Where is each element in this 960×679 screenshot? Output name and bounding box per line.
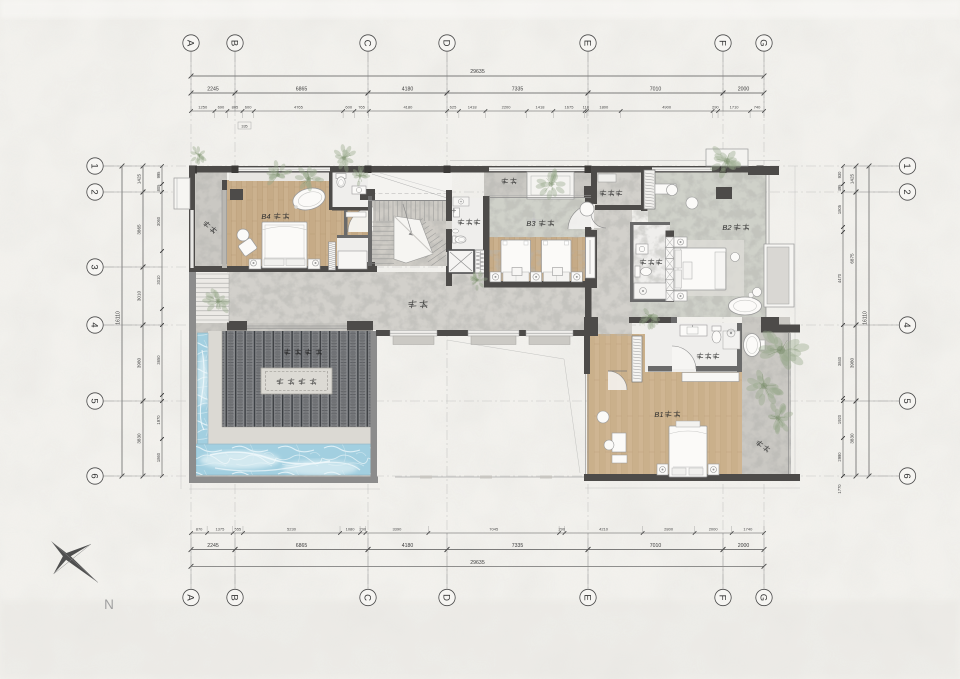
svg-text:7335: 7335 [512, 543, 524, 549]
svg-text:3390: 3390 [392, 527, 402, 532]
svg-text:2: 2 [901, 189, 912, 194]
svg-text:1805: 1805 [837, 204, 842, 214]
svg-text:1710: 1710 [730, 105, 740, 110]
svg-text:805: 805 [232, 105, 239, 110]
svg-text:3010: 3010 [156, 275, 161, 285]
svg-text:1800: 1800 [599, 105, 609, 110]
svg-text:6865: 6865 [296, 87, 308, 93]
svg-text:4470: 4470 [837, 273, 842, 283]
svg-text:3980: 3980 [850, 357, 855, 368]
svg-text:B1: B1 [654, 410, 663, 419]
svg-text:3980: 3980 [137, 357, 142, 368]
svg-text:1250: 1250 [198, 105, 208, 110]
svg-text:3010: 3010 [137, 290, 142, 301]
svg-text:555: 555 [234, 527, 241, 532]
svg-text:335: 335 [241, 124, 247, 128]
svg-text:1375: 1375 [215, 527, 225, 532]
svg-text:D: D [441, 40, 452, 47]
svg-text:765: 765 [358, 105, 365, 110]
svg-text:4180: 4180 [402, 87, 414, 93]
svg-text:G: G [758, 39, 769, 46]
svg-text:7045: 7045 [489, 527, 499, 532]
svg-text:1970: 1970 [156, 415, 161, 425]
svg-text:B4: B4 [261, 212, 270, 221]
svg-text:B: B [229, 40, 240, 46]
svg-text:5230: 5230 [287, 527, 297, 532]
svg-text:4: 4 [901, 322, 912, 327]
svg-text:N: N [104, 597, 114, 612]
svg-text:4765: 4765 [294, 105, 304, 110]
svg-text:4900: 4900 [662, 105, 672, 110]
svg-text:7010: 7010 [650, 543, 662, 549]
svg-text:1: 1 [89, 163, 100, 168]
svg-text:C: C [362, 594, 373, 601]
svg-text:1860: 1860 [156, 452, 161, 462]
svg-text:2990: 2990 [837, 452, 842, 462]
svg-text:495: 495 [837, 184, 842, 192]
svg-text:290: 290 [712, 105, 719, 110]
svg-text:690: 690 [218, 105, 225, 110]
svg-text:B3: B3 [526, 219, 536, 228]
svg-text:A: A [185, 594, 196, 601]
svg-text:G: G [758, 594, 769, 601]
svg-text:6865: 6865 [296, 543, 308, 549]
svg-text:1: 1 [901, 163, 912, 168]
svg-text:1740: 1740 [743, 527, 753, 532]
svg-text:A: A [185, 40, 196, 47]
svg-text:6: 6 [89, 473, 100, 478]
svg-text:1770: 1770 [837, 484, 842, 494]
svg-text:930: 930 [837, 171, 842, 179]
svg-text:3840: 3840 [837, 356, 842, 366]
svg-text:F: F [717, 40, 728, 46]
svg-text:29635: 29635 [470, 69, 485, 75]
svg-text:1080: 1080 [346, 527, 356, 532]
svg-text:3: 3 [89, 264, 100, 269]
svg-text:2245: 2245 [207, 87, 219, 93]
svg-text:5: 5 [89, 398, 100, 403]
svg-text:1425: 1425 [850, 173, 855, 184]
svg-text:D: D [441, 594, 452, 601]
svg-text:1418: 1418 [468, 105, 478, 110]
svg-text:E: E [582, 40, 593, 46]
svg-text:16110: 16110 [863, 311, 869, 325]
svg-text:2: 2 [89, 189, 100, 194]
svg-text:B2: B2 [722, 223, 732, 232]
svg-text:2000: 2000 [709, 527, 719, 532]
svg-text:2800: 2800 [664, 527, 674, 532]
svg-text:4180: 4180 [402, 543, 414, 549]
svg-text:995: 995 [156, 171, 161, 179]
svg-text:600: 600 [245, 105, 252, 110]
svg-text:1920: 1920 [837, 414, 842, 424]
svg-text:600: 600 [345, 105, 352, 110]
svg-text:4: 4 [89, 322, 100, 327]
svg-text:3830: 3830 [850, 433, 855, 444]
svg-text:4180: 4180 [403, 105, 413, 110]
svg-text:3830: 3830 [137, 433, 142, 444]
svg-text:6875: 6875 [850, 253, 855, 264]
svg-text:2000: 2000 [738, 543, 750, 549]
svg-text:2200: 2200 [502, 105, 512, 110]
svg-text:E: E [582, 594, 593, 600]
svg-text:740: 740 [754, 105, 761, 110]
svg-text:2000: 2000 [738, 87, 750, 93]
svg-text:1675: 1675 [565, 105, 575, 110]
svg-text:C: C [362, 40, 373, 47]
svg-text:3060: 3060 [156, 216, 161, 226]
svg-text:1425: 1425 [137, 173, 142, 184]
svg-text:7335: 7335 [512, 87, 524, 93]
svg-text:290: 290 [558, 527, 565, 532]
svg-text:5: 5 [901, 398, 912, 403]
svg-text:3650: 3650 [156, 355, 161, 365]
svg-text:625: 625 [450, 105, 457, 110]
svg-text:F: F [717, 595, 728, 601]
svg-text:29635: 29635 [470, 560, 485, 566]
svg-text:870: 870 [196, 527, 203, 532]
svg-text:3865: 3865 [137, 224, 142, 235]
svg-text:4210: 4210 [599, 527, 609, 532]
svg-text:2245: 2245 [207, 543, 219, 549]
svg-text:290: 290 [359, 527, 366, 532]
svg-text:1418: 1418 [536, 105, 546, 110]
svg-text:805: 805 [156, 184, 161, 192]
svg-text:118: 118 [583, 105, 590, 110]
svg-text:B: B [229, 594, 240, 600]
svg-text:16110: 16110 [116, 311, 122, 325]
svg-text:6: 6 [901, 473, 912, 478]
svg-text:7010: 7010 [650, 87, 662, 93]
